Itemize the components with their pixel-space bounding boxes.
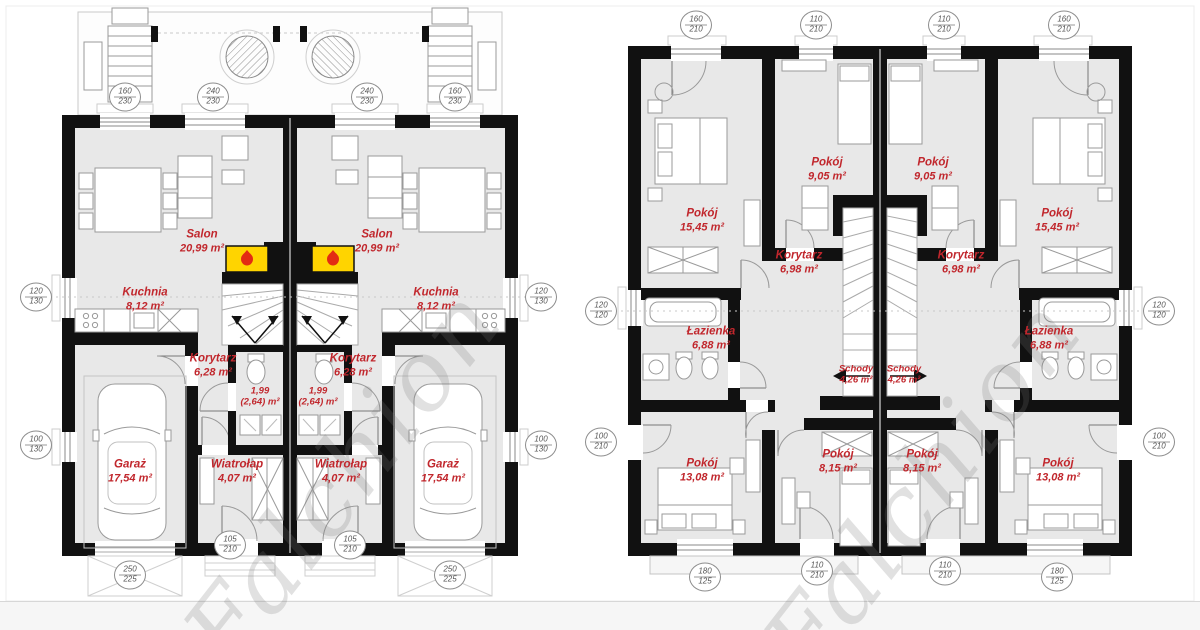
stairs bbox=[222, 284, 283, 345]
dim-circle: 160210 bbox=[1048, 11, 1080, 40]
dim-circle: 120130 bbox=[525, 283, 557, 312]
dim-circle: 105210 bbox=[214, 531, 246, 560]
room-label-korytarz-left: Korytarz6,28 m² bbox=[190, 353, 237, 380]
dim-circle: 240230 bbox=[351, 83, 383, 112]
dim-circle: 160210 bbox=[680, 11, 712, 40]
dim-circle: 100210 bbox=[585, 428, 617, 457]
right-floor-plan bbox=[615, 36, 1145, 574]
room-label-wiatrolap-right: Wiatrołap4,07 m² bbox=[315, 459, 367, 486]
dim-circle: 110210 bbox=[800, 11, 832, 40]
window bbox=[618, 287, 643, 329]
room-label-wc-left: 1,99(2,64) m² bbox=[240, 386, 279, 409]
room-label-korytarz2-left: Korytarz6,98 m² bbox=[776, 250, 823, 277]
dim-circle: 120130 bbox=[20, 283, 52, 312]
dim-circle: 120120 bbox=[1143, 297, 1175, 326]
room-label-garaz-right: Garaż17,54 m² bbox=[421, 459, 465, 486]
sheet-edge-band bbox=[0, 602, 1200, 630]
room-label-korytarz2-right: Korytarz6,98 m² bbox=[938, 250, 985, 277]
dim-circle: 250225 bbox=[434, 561, 466, 590]
room-label-salon-left: Salon20,99 m² bbox=[180, 229, 224, 256]
room-label-korytarz-right: Korytarz6,28 m² bbox=[330, 353, 377, 380]
dim-circle: 240230 bbox=[197, 83, 229, 112]
room-label-lazienka-left: Łazienka6,88 m² bbox=[687, 326, 736, 353]
dim-circle: 180125 bbox=[689, 563, 721, 592]
room-label-schody-left: Schody4,26 m² bbox=[839, 364, 873, 387]
room-label-salon-right: Salon20,99 m² bbox=[355, 229, 399, 256]
room-label-kuchnia-left: Kuchnia8,12 m² bbox=[122, 287, 167, 314]
dim-circle: 110210 bbox=[929, 557, 961, 586]
dim-circle: 110210 bbox=[801, 557, 833, 586]
room-label-wc-right: 1,99(2,64) m² bbox=[298, 386, 337, 409]
dim-circle: 105210 bbox=[334, 531, 366, 560]
dim-circle: 110210 bbox=[928, 11, 960, 40]
room-label-pokoj905-left: Pokój9,05 m² bbox=[808, 157, 846, 184]
dim-circle: 180125 bbox=[1041, 563, 1073, 592]
room-label-pokoj1308-left: Pokój13,08 m² bbox=[680, 458, 724, 485]
window bbox=[677, 539, 733, 556]
floor-plans-page: Falchion Falchion Salon20,99 m² Salon20,… bbox=[0, 0, 1200, 630]
room-label-lazienka-right: Łazienka6,88 m² bbox=[1025, 326, 1074, 353]
dim-circle: 160230 bbox=[439, 83, 471, 112]
room-label-kuchnia-right: Kuchnia8,12 m² bbox=[413, 287, 458, 314]
room-label-pokoj815-right: Pokój8,15 m² bbox=[903, 449, 941, 476]
terrace-planter bbox=[226, 36, 268, 78]
room-label-pokoj905-right: Pokój9,05 m² bbox=[914, 157, 952, 184]
room-label-wiatrolap-left: Wiatrołap4,07 m² bbox=[211, 459, 263, 486]
dim-circle: 160230 bbox=[109, 83, 141, 112]
room-label-pokoj1545-right: Pokój15,45 m² bbox=[1035, 208, 1079, 235]
dim-circle: 100130 bbox=[20, 431, 52, 460]
room-label-schody-right: Schody4,26 m² bbox=[887, 364, 921, 387]
dim-circle: 100130 bbox=[525, 431, 557, 460]
dim-circle: 100210 bbox=[1143, 428, 1175, 457]
room-label-garaz-left: Garaż17,54 m² bbox=[108, 459, 152, 486]
garage-door bbox=[95, 541, 175, 558]
dim-circle: 120120 bbox=[585, 297, 617, 326]
room-label-pokoj1545-left: Pokój15,45 m² bbox=[680, 208, 724, 235]
dim-circle: 250225 bbox=[114, 561, 146, 590]
room-label-pokoj815-left: Pokój8,15 m² bbox=[819, 449, 857, 476]
room-label-pokoj1308-right: Pokój13,08 m² bbox=[1036, 458, 1080, 485]
